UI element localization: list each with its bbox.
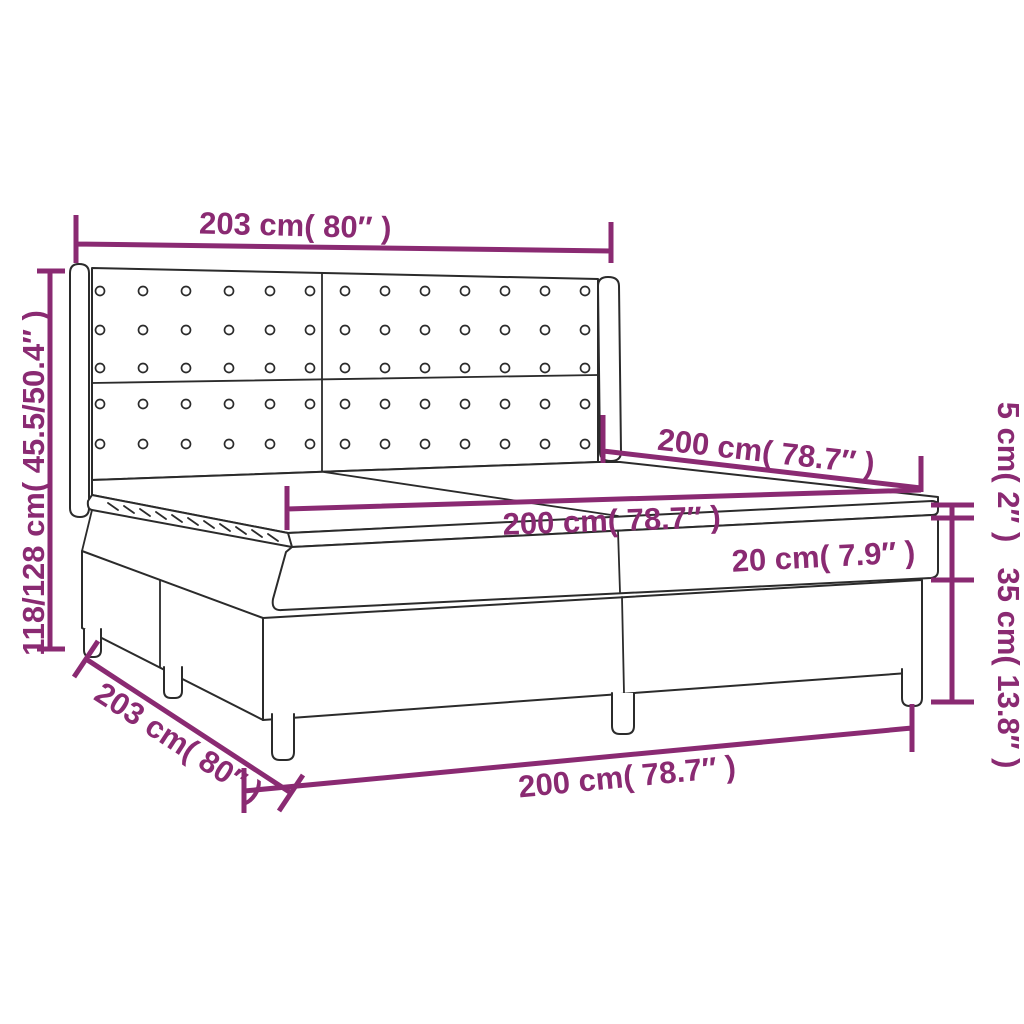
tufting-button	[96, 364, 105, 373]
tufting-button	[139, 400, 148, 409]
tufting-button	[541, 400, 550, 409]
dim-label-base-height: 35 cm( 13.8″ )	[991, 568, 1024, 769]
dim-length-bottom: 200 cm( 78.7″ )	[244, 704, 912, 813]
tufting-button	[381, 400, 390, 409]
tufting-button	[581, 364, 590, 373]
tufting-button	[341, 287, 350, 296]
tufting-button	[541, 287, 550, 296]
tufting-button	[225, 287, 234, 296]
tufting-button	[96, 326, 105, 335]
tufting-button	[266, 400, 275, 409]
tufting-button	[266, 364, 275, 373]
tufting-button	[381, 287, 390, 296]
tufting-button	[266, 287, 275, 296]
tufting-button	[461, 287, 470, 296]
tufting-button	[225, 364, 234, 373]
tufting-button	[225, 326, 234, 335]
tufting-button	[541, 440, 550, 449]
tufting-button	[225, 440, 234, 449]
tufting-button	[461, 364, 470, 373]
tufting-button	[501, 400, 510, 409]
dim-headboard-width: 203 cm( 80″ )	[76, 205, 611, 263]
dim-total-height: 118/128 cm( 45.5/50.4″ )	[16, 271, 65, 656]
tufting-button	[341, 400, 350, 409]
tufting-button	[501, 326, 510, 335]
leg-front-left	[272, 714, 294, 760]
tufting-button	[266, 440, 275, 449]
tufting-button	[341, 326, 350, 335]
tufting-button	[421, 326, 430, 335]
tufting-button	[182, 400, 191, 409]
tufting-button	[581, 440, 590, 449]
dimension-diagram: 203 cm( 80″ ) 118/128 cm( 45.5/50.4″ ) 2…	[0, 0, 1024, 1024]
tufting-button	[421, 400, 430, 409]
tufting-button	[581, 287, 590, 296]
tufting-button	[421, 364, 430, 373]
tufting-button	[139, 287, 148, 296]
tufting-button	[139, 364, 148, 373]
tufting-button	[306, 287, 315, 296]
tufting-button	[381, 440, 390, 449]
tufting-button	[306, 326, 315, 335]
tufting-button	[139, 440, 148, 449]
tufting-button	[182, 440, 191, 449]
leg-front-right	[902, 669, 922, 706]
tufting-button	[381, 326, 390, 335]
tufting-button	[139, 326, 148, 335]
leg-mid-left	[164, 667, 182, 698]
dim-right-heights: 5 cm( 2″ ) 35 cm( 13.8″ )	[931, 402, 1024, 769]
tufting-button	[461, 440, 470, 449]
headboard-left-wing	[70, 264, 89, 517]
tufting-button	[182, 287, 191, 296]
tufting-button	[96, 400, 105, 409]
tufting-button	[501, 364, 510, 373]
dim-label-headboard-width: 203 cm( 80″ )	[199, 205, 392, 245]
tufting-button	[421, 287, 430, 296]
tufting-button	[182, 364, 191, 373]
tufting-button	[96, 287, 105, 296]
bed-diagram-svg: 203 cm( 80″ ) 118/128 cm( 45.5/50.4″ ) 2…	[0, 0, 1024, 1024]
tufting-button	[306, 400, 315, 409]
tufting-button	[541, 364, 550, 373]
tufting-button	[501, 287, 510, 296]
tufting-button	[461, 400, 470, 409]
tufting-button	[341, 364, 350, 373]
tufting-button	[541, 326, 550, 335]
tufting-button	[225, 400, 234, 409]
tufting-button	[581, 400, 590, 409]
tufting-button	[501, 440, 510, 449]
tufting-button	[96, 440, 105, 449]
tufting-button	[266, 326, 275, 335]
tufting-button	[341, 440, 350, 449]
tufting-button	[581, 326, 590, 335]
leg-front-center	[612, 693, 634, 734]
tufting-button	[306, 364, 315, 373]
tufting-button	[421, 440, 430, 449]
dim-label-total-height: 118/128 cm( 45.5/50.4″ )	[16, 310, 51, 656]
dim-label-topper-height: 5 cm( 2″ )	[991, 402, 1024, 543]
tufting-button	[306, 440, 315, 449]
tufting-button	[461, 326, 470, 335]
tufting-button	[182, 326, 191, 335]
tufting-button	[381, 364, 390, 373]
